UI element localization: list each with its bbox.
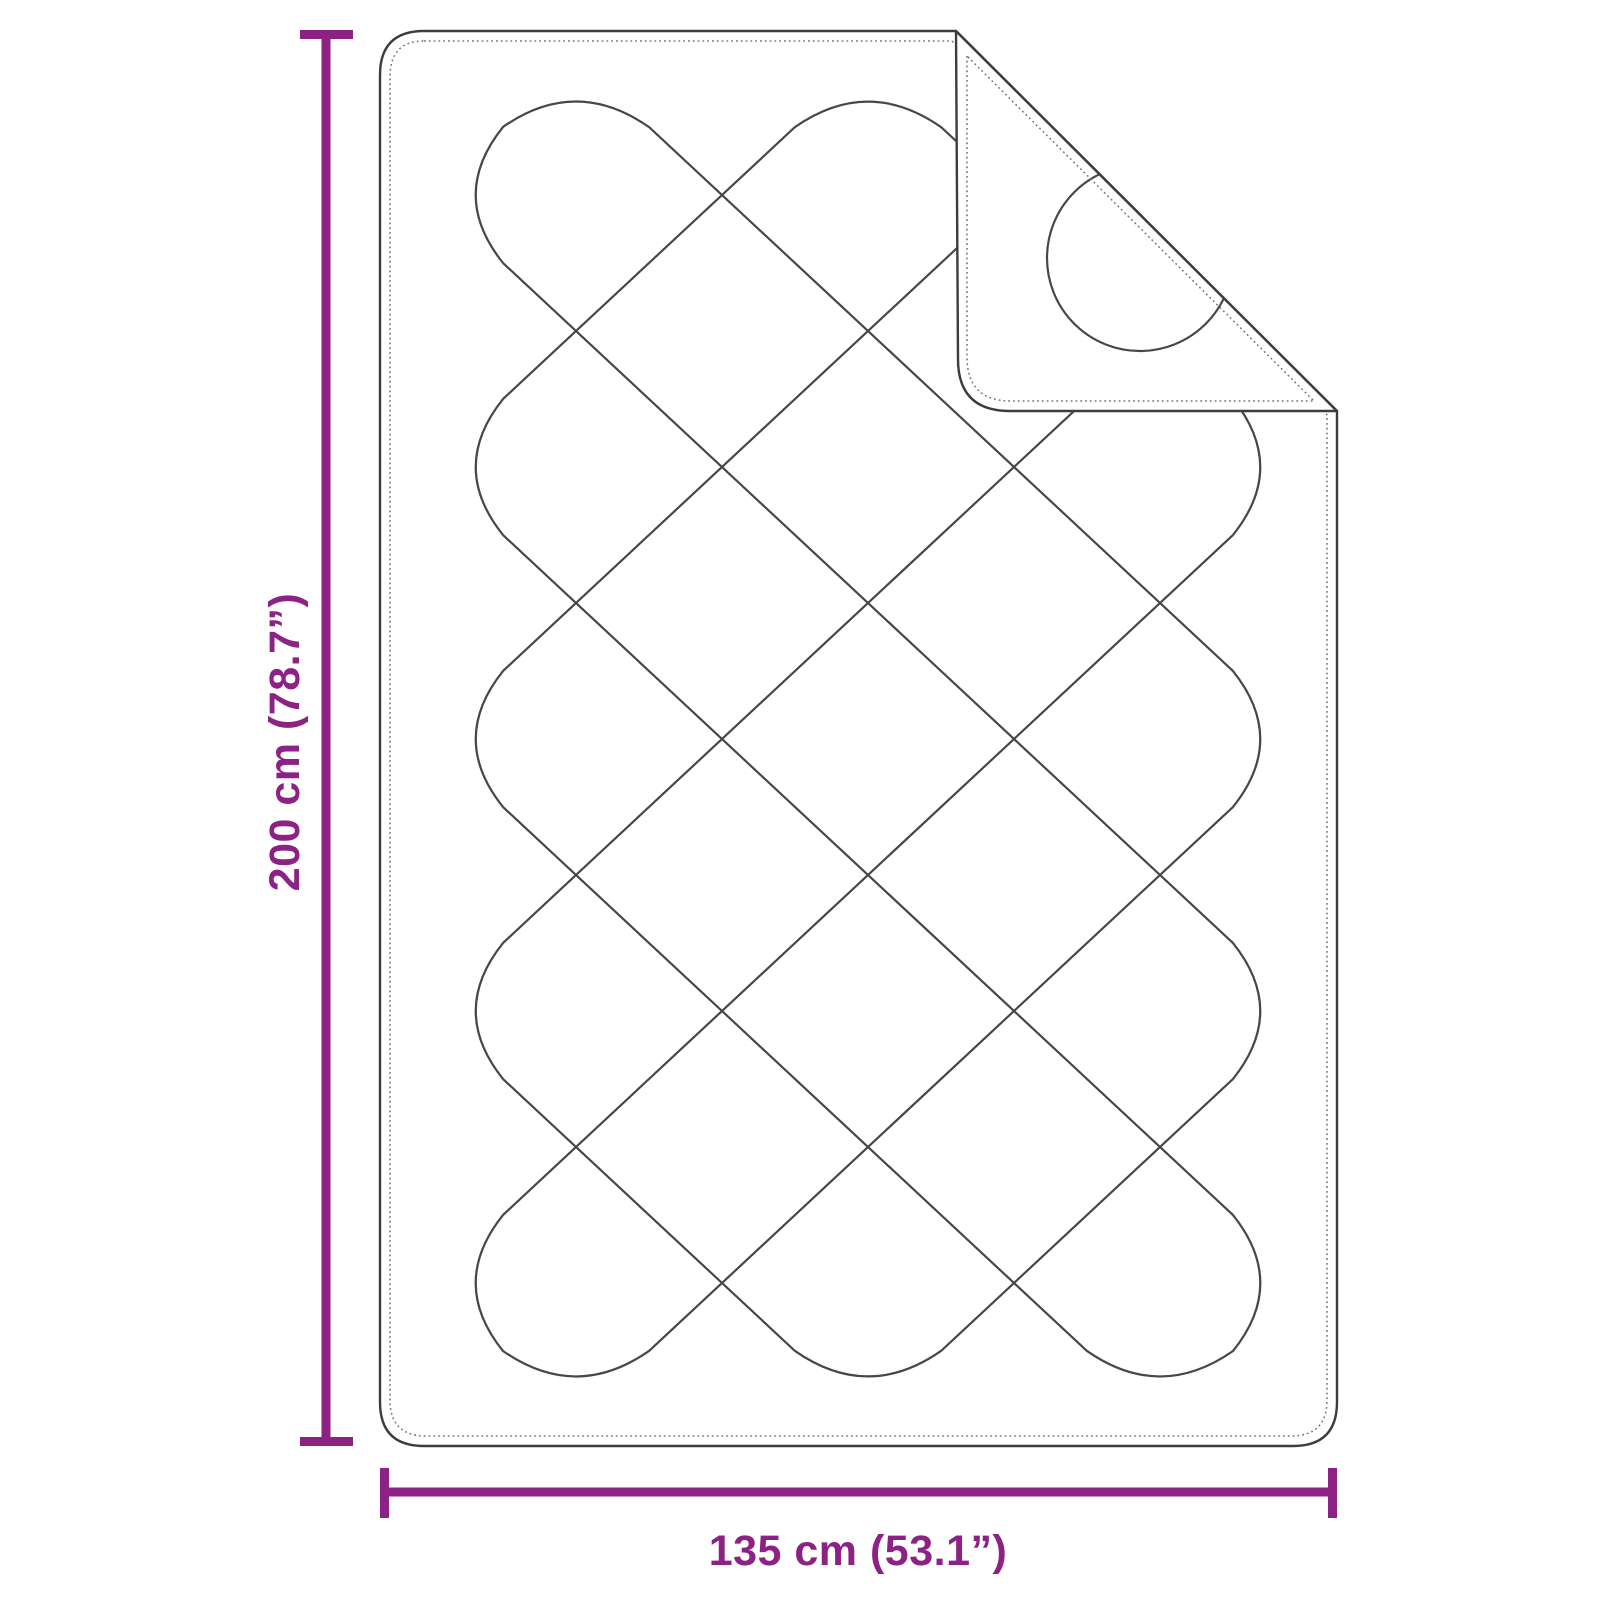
blanket-outline — [380, 31, 1337, 1446]
vertical-dimension-label: 200 cm (78.7”) — [261, 593, 309, 892]
blanket-stitch-border — [390, 41, 1327, 1436]
dimension-labels: 200 cm (78.7”) 135 cm (53.1”) — [261, 593, 1007, 1575]
dimension-lines — [300, 30, 1337, 1518]
horizontal-dimension-label: 135 cm (53.1”) — [709, 1527, 1008, 1575]
blanket-stitch-layer — [390, 41, 1327, 1436]
blanket-diagram-svg: 200 cm (78.7”) 135 cm (53.1”) — [0, 0, 1600, 1600]
blanket-outline-layer — [380, 31, 1337, 1446]
product-dimension-diagram: 200 cm (78.7”) 135 cm (53.1”) — [0, 0, 1600, 1600]
